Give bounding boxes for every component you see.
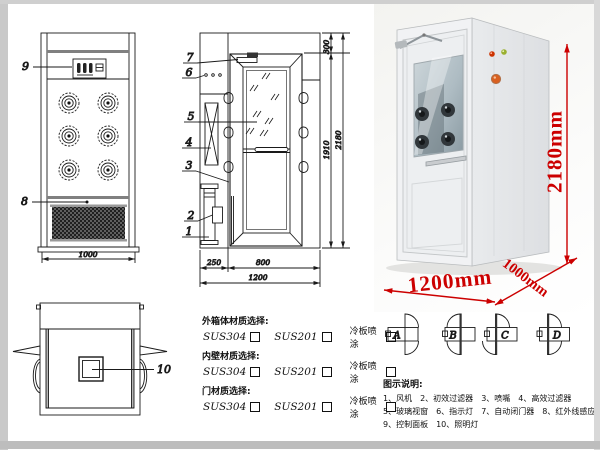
svg-text:1200: 1200 <box>248 273 267 282</box>
legend-line-2: 5、玻璃视窗6、指示灯7、自动闭门器8、红外线感应器 <box>383 406 596 419</box>
svg-text:800: 800 <box>256 258 271 267</box>
svg-text:4: 4 <box>185 136 193 149</box>
glass-hatching <box>246 73 279 136</box>
legend-line-3: 9、控制面板10、照明灯 <box>383 419 596 432</box>
side-view-drawing: 7 6 5 4 3 2 1 250 800 <box>182 33 350 287</box>
legend-item: 10、照明灯 <box>436 420 478 429</box>
legend-line-1: 1、风机2、初效过滤器3、喷嘴4、高效过滤器 <box>383 393 596 406</box>
legend-item: 4、高效过滤器 <box>518 394 571 403</box>
legend-item: 5、玻璃视窗 <box>383 407 428 416</box>
door-material-title: 门材质选择: <box>202 384 396 397</box>
inner-wall-material-title: 内壁材质选择: <box>202 349 396 362</box>
side-bottom-dims: 250 800 1200 <box>200 248 320 287</box>
filter-column <box>201 184 234 245</box>
fan-box <box>205 103 218 165</box>
door-hinge-marks <box>13 346 167 393</box>
callout-9: 9 <box>22 60 29 73</box>
material-checkbox <box>322 332 332 342</box>
material-checkbox <box>386 332 396 342</box>
air-shower-spec-sheet: 9 8 1000 <box>0 0 600 450</box>
page-border-left <box>0 0 8 450</box>
lamp-box <box>79 357 103 381</box>
callout-8: 8 <box>21 195 28 208</box>
door-config-c: C <box>483 314 518 356</box>
material-checkbox <box>386 367 396 377</box>
side-right-dims: 300 1910 2180 <box>304 33 350 248</box>
inner-wall-material-options: SUS304 SUS201 冷板喷涂 <box>203 365 396 378</box>
material-option-label: SUS201 <box>274 331 317 343</box>
door-config-diagrams: A B C D <box>386 314 570 356</box>
legend-item: 7、自动闭门器 <box>481 407 534 416</box>
door-drawing <box>224 53 308 247</box>
material-checkbox <box>322 367 332 377</box>
cabinet-side-face <box>472 18 549 266</box>
callout-10: 10 <box>157 363 171 376</box>
material-option-label: 冷板喷涂 <box>350 359 382 385</box>
svg-text:1910: 1910 <box>322 140 331 159</box>
door-config-d: D <box>537 314 570 356</box>
height-dimension-label: 2180mm <box>543 87 568 217</box>
front-width-dim: 1000 <box>78 250 97 259</box>
svg-text:6: 6 <box>186 66 193 79</box>
page-border-right <box>594 0 600 450</box>
material-option-label: 冷板喷涂 <box>350 324 382 350</box>
svg-text:300: 300 <box>322 40 331 55</box>
svg-text:2: 2 <box>187 209 195 222</box>
svg-text:250: 250 <box>206 258 222 267</box>
svg-text:D: D <box>552 331 561 342</box>
top-view-drawing: 10 <box>13 303 171 415</box>
svg-text:C: C <box>501 331 509 342</box>
material-checkbox <box>250 367 260 377</box>
nozzles-front <box>59 93 118 180</box>
door-material-options: SUS304 SUS201 冷板喷涂 <box>203 400 396 413</box>
page-border-top <box>0 0 600 4</box>
svg-text:7: 7 <box>187 51 194 64</box>
material-option-label: SUS304 <box>203 401 246 413</box>
material-option-label: SUS304 <box>203 366 246 378</box>
front-view-drawing: 9 8 1000 <box>21 33 139 263</box>
outer-box-material-title: 外箱体材质选择: <box>202 314 396 327</box>
svg-text:2180: 2180 <box>334 130 343 150</box>
material-option-label: SUS201 <box>274 401 317 413</box>
legend-item: 2、初效过滤器 <box>420 394 473 403</box>
control-panel <box>73 59 106 78</box>
svg-text:1: 1 <box>186 225 193 238</box>
emergency-button <box>491 74 500 83</box>
material-checkbox <box>250 332 260 342</box>
legend-title: 图示说明: <box>383 377 596 390</box>
page-border-bottom <box>0 441 600 449</box>
svg-text:5: 5 <box>188 110 195 123</box>
door-config-b: B <box>443 314 476 356</box>
legend-item: 8、红外线感应器 <box>542 407 600 416</box>
material-checkbox <box>250 402 260 412</box>
material-option-label: SUS201 <box>274 366 317 378</box>
legend-item: 6、指示灯 <box>436 407 473 416</box>
legend-item: 3、喷嘴 <box>481 394 510 403</box>
product-photo: 2180mm 1200mm 1000mm <box>374 2 598 312</box>
return-grille <box>50 205 127 242</box>
material-selection: 外箱体材质选择: SUS304 SUS201 冷板喷涂 内壁材质选择: SUS3… <box>200 314 396 419</box>
material-option-label: 冷板喷涂 <box>350 394 382 420</box>
material-option-label: SUS304 <box>203 331 246 343</box>
outer-box-material-options: SUS304 SUS201 冷板喷涂 <box>203 330 396 343</box>
legend-item: 1、风机 <box>383 394 412 403</box>
material-checkbox <box>322 402 332 412</box>
legend: 图示说明: 1、风机2、初效过滤器3、喷嘴4、高效过滤器 5、玻璃视窗6、指示灯… <box>383 377 596 432</box>
legend-item: 9、控制面板 <box>383 420 428 429</box>
svg-text:B: B <box>448 331 456 342</box>
svg-text:3: 3 <box>186 159 193 172</box>
